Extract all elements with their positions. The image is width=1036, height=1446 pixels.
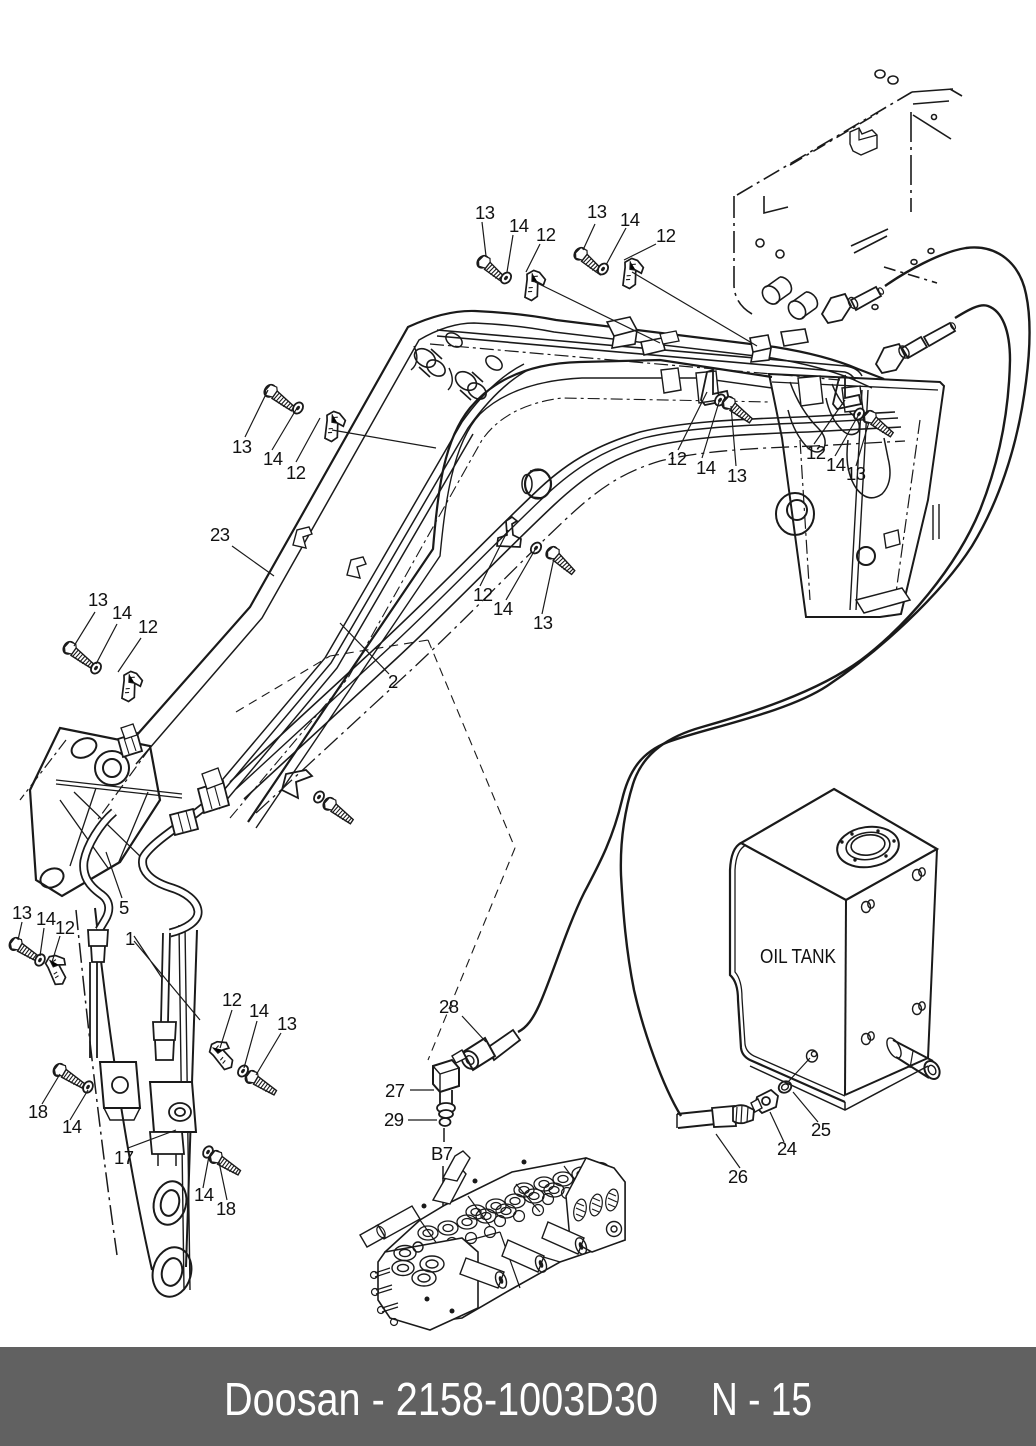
svg-text:13: 13 xyxy=(88,589,108,610)
svg-text:14: 14 xyxy=(112,602,132,623)
svg-text:14: 14 xyxy=(263,448,283,469)
svg-text:12: 12 xyxy=(138,616,158,637)
svg-text:12: 12 xyxy=(473,584,493,605)
svg-text:18: 18 xyxy=(28,1101,48,1122)
svg-text:B7: B7 xyxy=(431,1143,453,1164)
svg-text:Doosan - 2158-1003D30: Doosan - 2158-1003D30 xyxy=(224,1373,658,1425)
svg-text:14: 14 xyxy=(509,215,529,236)
svg-text:14: 14 xyxy=(493,598,513,619)
svg-text:OIL TANK: OIL TANK xyxy=(760,946,837,968)
svg-text:23: 23 xyxy=(210,524,230,545)
svg-text:13: 13 xyxy=(533,612,553,633)
svg-text:1: 1 xyxy=(125,928,135,949)
svg-text:25: 25 xyxy=(811,1119,831,1140)
svg-text:29: 29 xyxy=(384,1109,404,1130)
svg-text:2: 2 xyxy=(388,671,398,692)
svg-text:24: 24 xyxy=(777,1138,797,1159)
svg-text:5: 5 xyxy=(119,897,129,918)
svg-text:28: 28 xyxy=(439,996,459,1017)
svg-text:13: 13 xyxy=(277,1013,297,1034)
svg-text:14: 14 xyxy=(826,454,846,475)
svg-text:13: 13 xyxy=(727,465,747,486)
svg-text:14: 14 xyxy=(696,457,716,478)
svg-text:N - 15: N - 15 xyxy=(711,1373,812,1425)
svg-text:13: 13 xyxy=(475,202,495,223)
svg-text:12: 12 xyxy=(656,225,676,246)
svg-text:12: 12 xyxy=(55,917,75,938)
svg-text:13: 13 xyxy=(12,902,32,923)
svg-text:13: 13 xyxy=(232,436,252,457)
svg-text:14: 14 xyxy=(620,209,640,230)
svg-text:12: 12 xyxy=(667,448,687,469)
svg-text:12: 12 xyxy=(222,989,242,1010)
svg-text:12: 12 xyxy=(536,224,556,245)
svg-text:14: 14 xyxy=(194,1184,214,1205)
svg-text:13: 13 xyxy=(587,201,607,222)
svg-text:12: 12 xyxy=(806,442,826,463)
svg-text:18: 18 xyxy=(216,1198,236,1219)
svg-text:12: 12 xyxy=(286,462,306,483)
svg-text:13: 13 xyxy=(846,463,866,484)
svg-text:17: 17 xyxy=(114,1147,134,1168)
svg-text:14: 14 xyxy=(249,1000,269,1021)
svg-text:26: 26 xyxy=(728,1166,748,1187)
svg-text:27: 27 xyxy=(385,1080,405,1101)
svg-text:14: 14 xyxy=(36,908,56,929)
svg-text:14: 14 xyxy=(62,1116,82,1137)
